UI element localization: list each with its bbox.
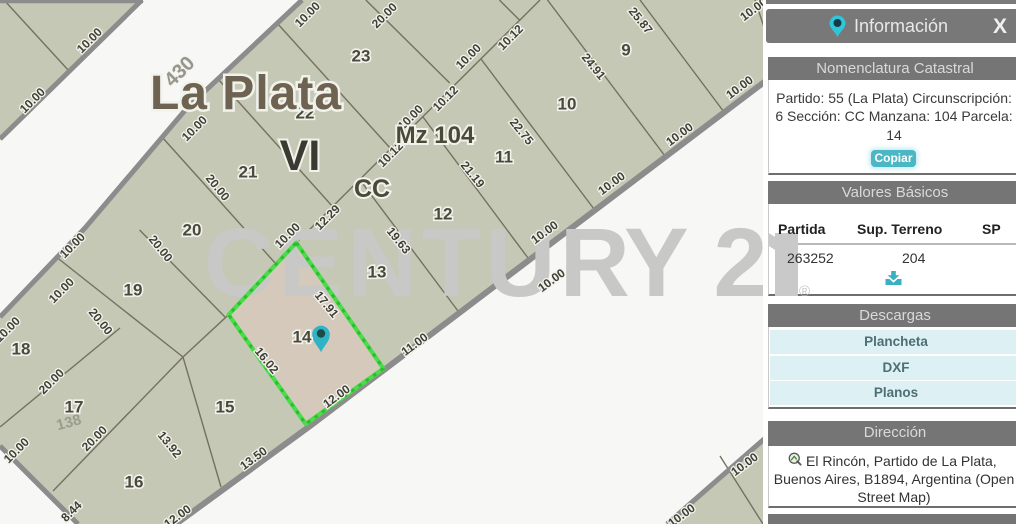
svg-text:20: 20 xyxy=(183,220,202,239)
svg-text:12: 12 xyxy=(434,204,453,223)
svg-text:10: 10 xyxy=(558,94,577,113)
svg-text:13: 13 xyxy=(368,262,387,281)
svg-text:11: 11 xyxy=(495,147,513,166)
svg-text:18: 18 xyxy=(12,339,31,358)
svg-text:16: 16 xyxy=(125,472,144,491)
svg-text:14: 14 xyxy=(293,327,312,346)
svg-text:23: 23 xyxy=(352,46,371,65)
svg-text:La Plata: La Plata xyxy=(150,67,342,120)
svg-text:21: 21 xyxy=(239,162,258,181)
svg-text:15: 15 xyxy=(216,397,235,416)
svg-text:9: 9 xyxy=(621,40,630,59)
svg-text:T: T xyxy=(422,208,481,317)
svg-text:CC: CC xyxy=(354,175,390,203)
svg-text:VI: VI xyxy=(280,132,321,180)
svg-text:19: 19 xyxy=(124,280,143,299)
svg-text:Y: Y xyxy=(624,208,689,317)
svg-text:Mz 104: Mz 104 xyxy=(396,122,475,149)
svg-text:R: R xyxy=(560,208,630,317)
